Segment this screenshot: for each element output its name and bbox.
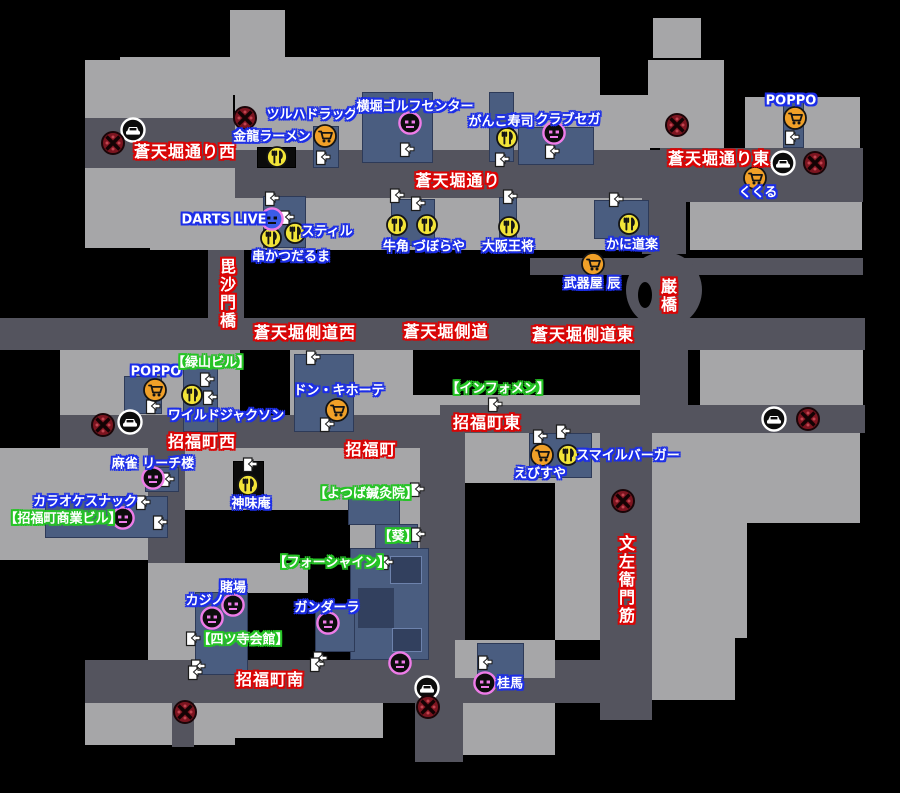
door-icon [502, 189, 518, 206]
city-block [555, 460, 602, 640]
door-icon [494, 152, 510, 169]
save-icon [796, 407, 820, 431]
city-block [690, 200, 862, 250]
shop-label: えびすや [514, 468, 566, 481]
shop-label: 牛角 [383, 241, 409, 254]
shop-label: 武器屋 辰 [564, 278, 621, 291]
shop-label: ドン・キホーテ [293, 385, 384, 398]
shop-label: くくる [739, 187, 778, 200]
shop-label: ツルハドラッグ [266, 109, 357, 122]
city-block [85, 60, 233, 118]
street-label: 蒼天堀側道東 [532, 327, 634, 343]
city-block [140, 702, 172, 742]
landmark-label: 【四ツ寺会館】 [197, 634, 288, 647]
save-icon [173, 700, 197, 724]
door-icon [608, 192, 624, 209]
save-icon [101, 131, 125, 155]
shop-label: クラブセガ [535, 114, 600, 127]
roundabout-island [638, 282, 652, 308]
city-block [700, 348, 863, 405]
building-detail [358, 588, 394, 628]
street-label: 招福町東 [453, 415, 521, 431]
landmark-label: 【緑山ビル】 [172, 357, 250, 370]
restaurant-icon [386, 214, 408, 236]
door-icon [187, 665, 203, 682]
building-detail [392, 628, 422, 652]
shop-label: 桂馬 [497, 678, 523, 691]
shop-label: 賭場 [220, 582, 246, 595]
shop-label: カジノ [186, 595, 225, 608]
shop-label: 麻雀 リーチ楼 [112, 458, 195, 471]
street-label: 毘沙門橋 [218, 258, 234, 330]
shop-icon [143, 378, 167, 402]
door-icon [202, 390, 218, 407]
taxi-icon [761, 406, 787, 432]
shop-icon [581, 252, 605, 276]
shop-icon [313, 124, 337, 148]
save-icon [233, 106, 257, 130]
door-icon [264, 191, 280, 208]
landmark-label: 【葵】 [378, 531, 417, 544]
shop-label: ガンダーラ [294, 602, 359, 615]
door-icon [487, 397, 503, 414]
building-detail [390, 556, 422, 584]
shop-label: かに道楽 [606, 239, 658, 252]
street-label: 蒼天堀通り [415, 173, 500, 189]
door-icon [555, 424, 571, 441]
shop-label: 大阪王将 [482, 241, 534, 254]
city-block [653, 18, 701, 58]
shop-label: 神味庵 [231, 498, 270, 511]
taxi-icon [770, 150, 796, 176]
street-label: 招福町 [345, 442, 396, 458]
door-icon [389, 188, 405, 205]
landmark-label: 【インフォメン】 [446, 383, 550, 396]
shop-label: 金龍ラーメン [233, 131, 310, 144]
shop-icon [783, 106, 807, 130]
street-label: 招福町南 [236, 672, 304, 688]
save-icon [803, 151, 827, 175]
door-icon [544, 144, 560, 161]
door-icon [305, 350, 321, 367]
shop-icon [530, 443, 554, 467]
door-icon [410, 196, 426, 213]
shop-label: DARTS LIVE [181, 214, 266, 227]
landmark-label: 【フォーシャイン】 [274, 557, 391, 570]
shop-label: スマイルバーガー [576, 450, 680, 463]
save-icon [611, 489, 635, 513]
shop-label: がんこ寿司 [468, 116, 533, 129]
street-label: 蒼天堀通り東 [668, 151, 770, 167]
city-block [652, 433, 747, 638]
landmark-label: 【招福町商業ビル】 [4, 513, 121, 526]
shop-label: POPPO [766, 95, 817, 108]
save-icon [665, 113, 689, 137]
city-block [235, 700, 383, 738]
minigame-icon [398, 111, 422, 135]
door-icon [477, 655, 493, 672]
restaurant-icon [181, 384, 203, 406]
street-label: 文左衛門筋 [617, 535, 633, 625]
minigame-icon [200, 606, 224, 630]
street-label: 巌橋 [659, 278, 675, 314]
shop-label: ワイルドジャクソン [168, 410, 284, 423]
shop-label: 串かつだるま [252, 251, 330, 264]
door-icon [135, 495, 151, 512]
street-label: 蒼天堀側道 [403, 324, 488, 340]
street-label: 招福町西 [168, 434, 236, 450]
save-icon [416, 695, 440, 719]
minigame-icon [388, 651, 412, 675]
door-icon [399, 142, 415, 159]
shop-label: スティル [301, 226, 352, 239]
street-label: 蒼天堀側道西 [254, 325, 356, 341]
door-icon [784, 130, 800, 147]
shop-label: カラオケスナック [33, 496, 137, 509]
restaurant-icon [266, 146, 288, 168]
city-block [230, 10, 285, 58]
shop-label: づぼらや [413, 241, 465, 254]
door-icon [152, 515, 168, 532]
street-label: 蒼天堀通り西 [134, 144, 236, 160]
restaurant-icon [498, 216, 520, 238]
taxi-icon [117, 409, 143, 435]
shop-icon [325, 398, 349, 422]
save-icon [91, 413, 115, 437]
restaurant-icon [618, 213, 640, 235]
landmark-label: 【よつば鍼灸院】 [314, 488, 418, 501]
sotenbori-game-map: 蒼天堀通り西蒼天堀通り蒼天堀通り東蒼天堀側道西蒼天堀側道蒼天堀側道東招福町西招福… [0, 0, 900, 793]
shop-label: 横堀ゴルフセンター [356, 101, 473, 114]
door-icon [315, 150, 331, 167]
door-icon [242, 457, 258, 474]
restaurant-icon [237, 474, 259, 496]
door-icon [309, 657, 325, 674]
street-segment [640, 326, 688, 410]
restaurant-icon [496, 127, 518, 149]
minigame-icon [473, 671, 497, 695]
restaurant-icon [416, 214, 438, 236]
